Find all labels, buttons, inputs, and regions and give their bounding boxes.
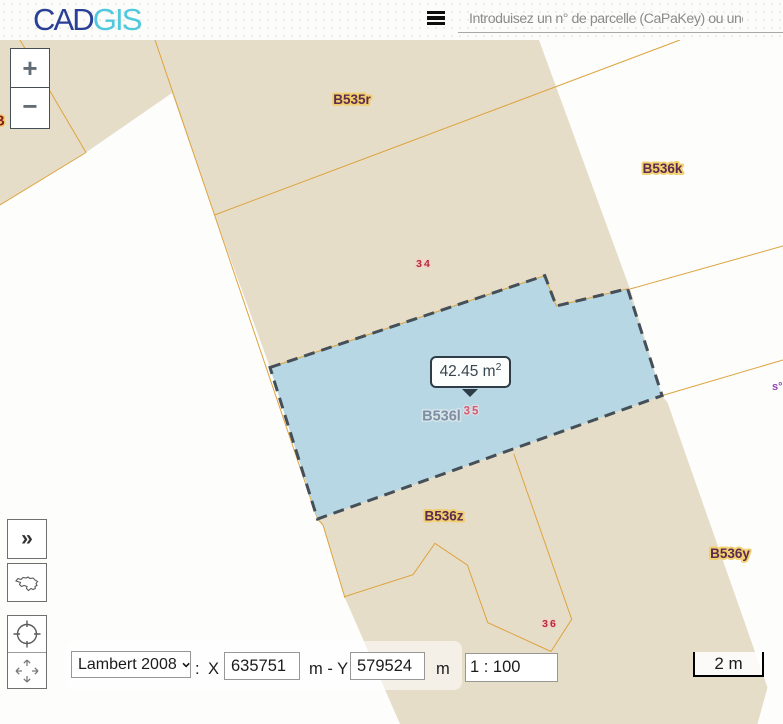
- svg-text:B536y: B536y: [710, 546, 750, 561]
- svg-text:B536k: B536k: [643, 161, 683, 176]
- svg-text:B: B: [0, 113, 5, 130]
- svg-text:36: 36: [542, 618, 558, 630]
- svg-text:35: 35: [464, 406, 481, 418]
- svg-text:B536l: B536l: [422, 409, 461, 425]
- svg-text:s°: s°: [772, 381, 783, 393]
- svg-text:B536z: B536z: [424, 509, 463, 524]
- svg-text:34: 34: [416, 258, 432, 270]
- svg-text:B535r: B535r: [333, 92, 371, 107]
